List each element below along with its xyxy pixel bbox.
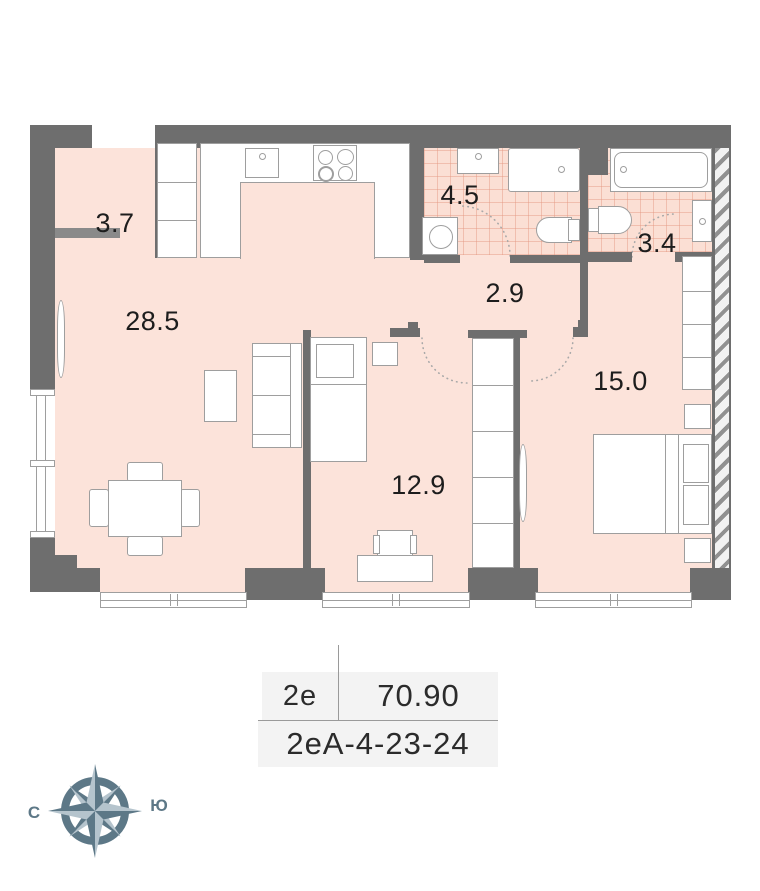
dining-chair	[180, 489, 200, 527]
window-bottom-2	[322, 592, 470, 608]
toilet	[536, 217, 572, 243]
sofa-armrest	[253, 344, 291, 357]
window-tick	[30, 460, 55, 467]
door-arc-bedroom	[530, 338, 573, 381]
wall-segment	[424, 255, 460, 263]
sofa	[252, 343, 302, 448]
bedside-table	[372, 342, 398, 366]
radiator-panel	[519, 444, 527, 522]
compass-north-label: С	[22, 803, 46, 823]
kitchen-tall-cabinet	[157, 143, 197, 258]
double-bed	[593, 434, 712, 534]
wall-segment	[390, 328, 420, 337]
pillow	[683, 444, 709, 483]
stove	[313, 145, 357, 181]
desk	[357, 555, 433, 582]
wall-segment	[30, 568, 100, 592]
sofa-back	[290, 344, 301, 447]
hatched-wall	[712, 148, 731, 568]
wall-segment	[580, 148, 588, 337]
shower-tray	[508, 148, 580, 192]
dining-chair	[127, 536, 163, 556]
toilet-tank	[568, 219, 580, 241]
single-bed	[310, 337, 367, 462]
wall-segment	[30, 125, 55, 392]
bathroom-sink	[457, 148, 499, 174]
window-bottom-3	[535, 592, 692, 608]
wall-segment	[513, 330, 520, 570]
nightstand	[684, 404, 711, 429]
unit-code-cell: 2еА-4-23-24	[258, 721, 498, 767]
wall-segment	[588, 148, 608, 175]
room-label-corridor: 2.9	[465, 278, 545, 309]
washing-machine-drum	[429, 225, 453, 249]
wall-segment	[408, 322, 418, 329]
nightstand	[684, 538, 711, 563]
sofa-armrest	[253, 434, 291, 447]
window-tick	[30, 531, 55, 538]
door-arc-bathroom	[460, 206, 510, 256]
pillow	[316, 344, 354, 378]
bedroom2-wardrobe	[472, 338, 514, 568]
room-label-kitchen-living: 28.5	[100, 306, 205, 337]
tv-stand	[204, 370, 237, 422]
wall-segment	[573, 327, 587, 337]
pillow	[683, 485, 709, 525]
bathroom-sink-faucet	[475, 153, 482, 160]
compass-south-label: Ю	[146, 796, 172, 816]
room-label-bedroom: 15.0	[568, 366, 673, 397]
wall-segment	[690, 568, 731, 600]
room-label-bathroom: 4.5	[420, 180, 500, 211]
floor-plan-page: 3.7 28.5 4.5 2.9 3.4 15.0 12.9 2е 70.90 …	[0, 0, 760, 891]
dining-chair	[127, 462, 163, 482]
wall-segment	[578, 320, 587, 327]
dining-table	[108, 480, 182, 537]
sofa-seat-divider	[253, 395, 291, 396]
radiator-panel	[57, 300, 65, 378]
room-label-bathroom2: 3.4	[617, 228, 697, 259]
bathtub-faucet	[620, 166, 627, 173]
window-bottom-1	[100, 592, 247, 608]
bedroom-wardrobe	[682, 256, 712, 390]
kitchen-floor-cutout	[240, 182, 375, 259]
window-tick	[30, 389, 55, 396]
wall-segment	[510, 255, 580, 263]
door-arc-bedroom2	[422, 338, 467, 383]
room-label-hallway: 3.7	[80, 208, 150, 239]
unit-type-cell: 2е	[262, 672, 338, 720]
total-area-cell: 70.90	[339, 672, 498, 720]
shower-drain	[558, 166, 565, 173]
bathroom2-sink-faucet	[699, 218, 706, 225]
wall-segment	[245, 568, 325, 600]
kitchen-sink-faucet	[259, 153, 266, 160]
desk-chair	[377, 530, 413, 557]
dining-chair	[89, 489, 109, 527]
wall-segment	[468, 568, 538, 600]
room-label-bedroom2: 12.9	[366, 470, 471, 501]
